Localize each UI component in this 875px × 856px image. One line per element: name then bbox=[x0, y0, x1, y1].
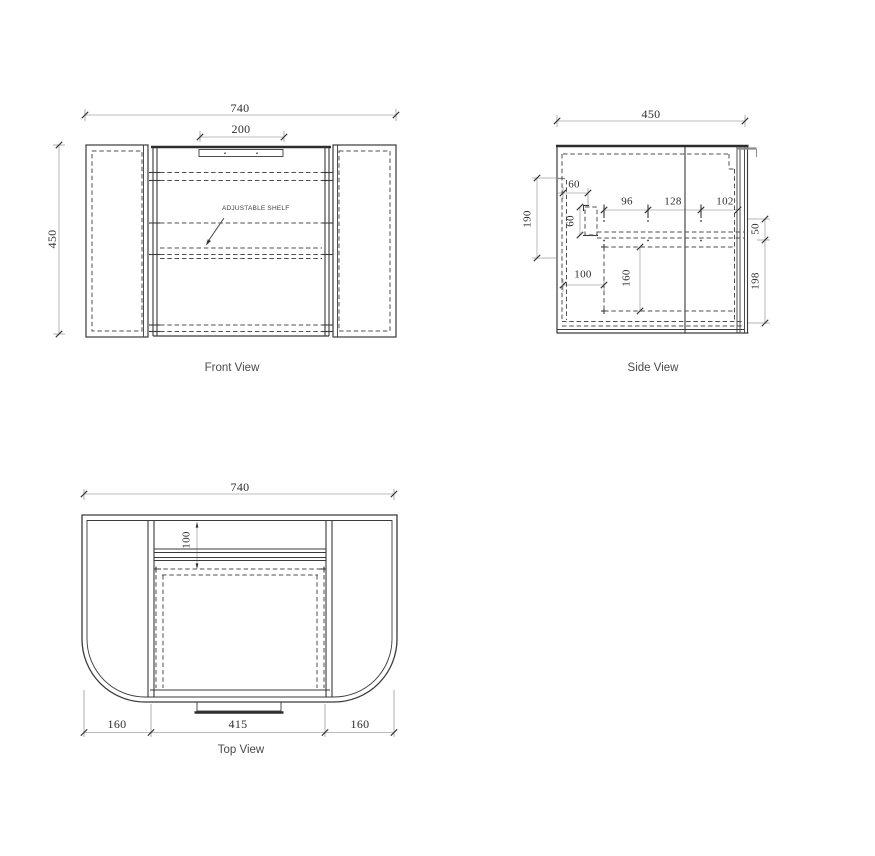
drawing-linework bbox=[0, 0, 875, 856]
front-overall-width-dim-label: 740 bbox=[231, 102, 250, 114]
front-view-caption: Front View bbox=[205, 362, 260, 374]
technical-drawing-page: 740 200 450 ADJUSTABLE SHELF Front View … bbox=[0, 0, 875, 856]
shelf-leader-line bbox=[207, 218, 224, 243]
side-102-dim-label: 102 bbox=[716, 197, 733, 208]
side-96-dim-label: 96 bbox=[621, 197, 633, 208]
top-view-linework bbox=[81, 489, 397, 737]
top-right-overhang-dim-label: 160 bbox=[351, 718, 370, 730]
top-overall-width-dim-label: 740 bbox=[231, 481, 250, 493]
front-view-linework bbox=[53, 109, 399, 337]
side-60-vertical-dim-label: 60 bbox=[566, 215, 577, 227]
side-198-dim-label: 198 bbox=[751, 272, 762, 289]
front-handle-width-dim-label: 200 bbox=[232, 123, 251, 135]
top-left-overhang-dim-label: 160 bbox=[108, 718, 127, 730]
shelf-arrowhead bbox=[206, 239, 211, 245]
side-128-dim-label: 128 bbox=[664, 197, 681, 208]
top-opening-dim-label: 415 bbox=[229, 718, 248, 730]
top-view-caption: Top View bbox=[218, 744, 264, 756]
side-190-dim-label: 190 bbox=[523, 210, 534, 227]
front-overall-height-dim-label: 450 bbox=[46, 230, 58, 249]
side-depth-dim-label: 450 bbox=[642, 108, 661, 120]
top-100-dim-label: 100 bbox=[182, 531, 193, 548]
side-160-dim-label: 160 bbox=[622, 269, 633, 286]
side-view-caption: Side View bbox=[628, 362, 679, 374]
side-100-dim-label: 100 bbox=[574, 270, 591, 281]
side-50-dim-label: 50 bbox=[751, 223, 762, 235]
wall-bracket-mark bbox=[557, 149, 757, 179]
adjustable-shelf-label: ADJUSTABLE SHELF bbox=[222, 205, 289, 212]
side-60-horizontal-dim-label: 60 bbox=[568, 180, 580, 191]
